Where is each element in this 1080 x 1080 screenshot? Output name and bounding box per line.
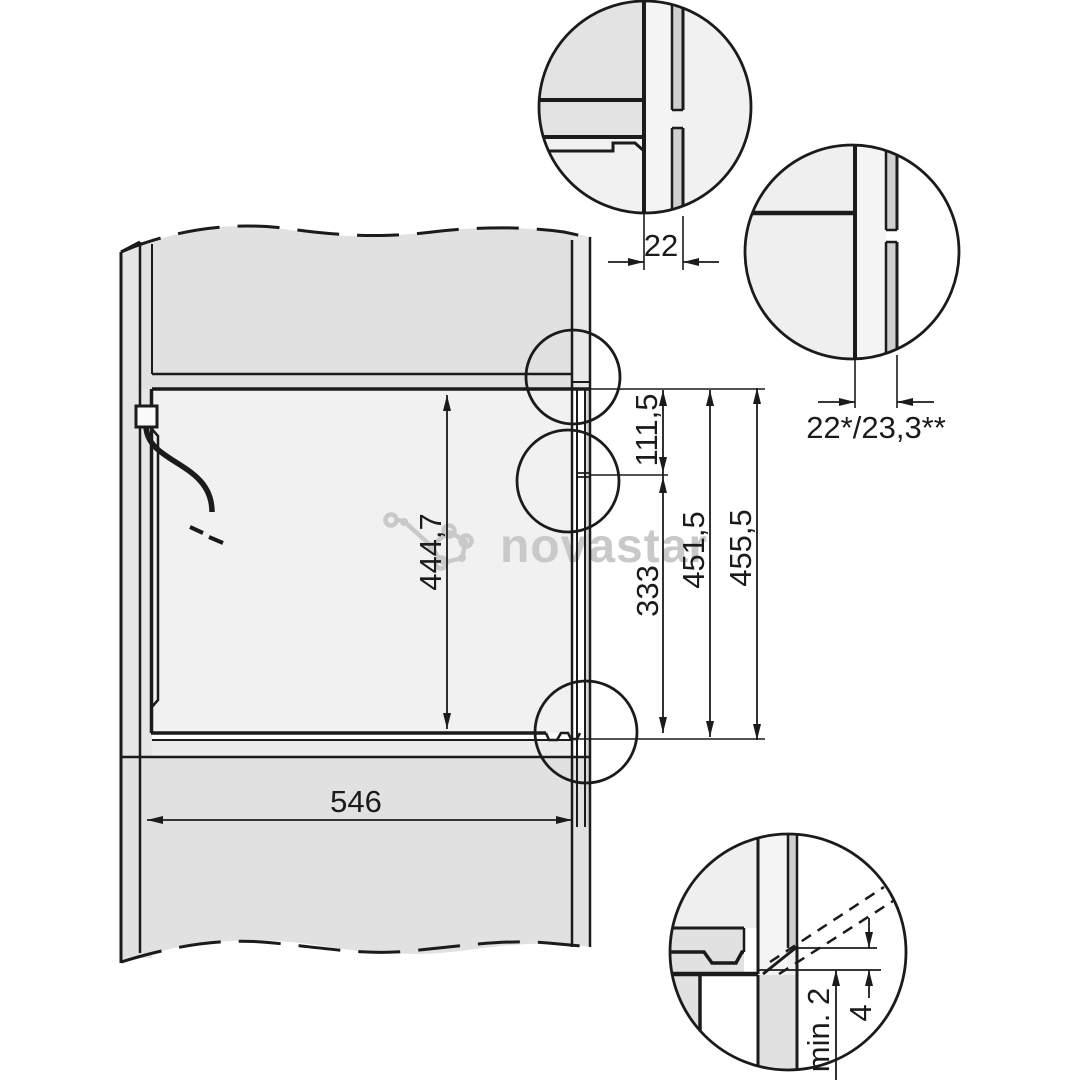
detail-view-bottom-clearance: min. 2 4 (660, 830, 922, 1080)
detail-view-front-thickness-side: 22*/23,3** (740, 140, 959, 445)
dim-front-height-outer: 455,5 (723, 388, 761, 740)
dim-label-depth: 546 (330, 784, 382, 819)
dim-label-bottom-gap: 4 (843, 1004, 878, 1021)
screenshot-canvas: novastar (0, 0, 1080, 1080)
dim-label-top-offset: 111,5 (629, 394, 664, 467)
dim-label-niche-height: 444,7 (413, 513, 448, 591)
dim-label-bottom-clearance: min. 2 (801, 988, 836, 1072)
installation-diagram: novastar (0, 0, 1080, 1080)
cabinet-section-fills (121, 226, 590, 964)
mains-connection-box (136, 406, 157, 427)
dim-label-mid-span: 333 (630, 565, 665, 617)
shelf-notch (546, 733, 580, 740)
dim-label-front-height-outer: 455,5 (723, 509, 758, 587)
dim-label-front-height-inner: 451,5 (676, 511, 711, 589)
dim-label-front-thickness-top: 22 (644, 228, 678, 263)
dim-label-front-thickness-side: 22*/23,3** (806, 410, 946, 445)
dim-front-height-inner: 451,5 (676, 390, 714, 737)
